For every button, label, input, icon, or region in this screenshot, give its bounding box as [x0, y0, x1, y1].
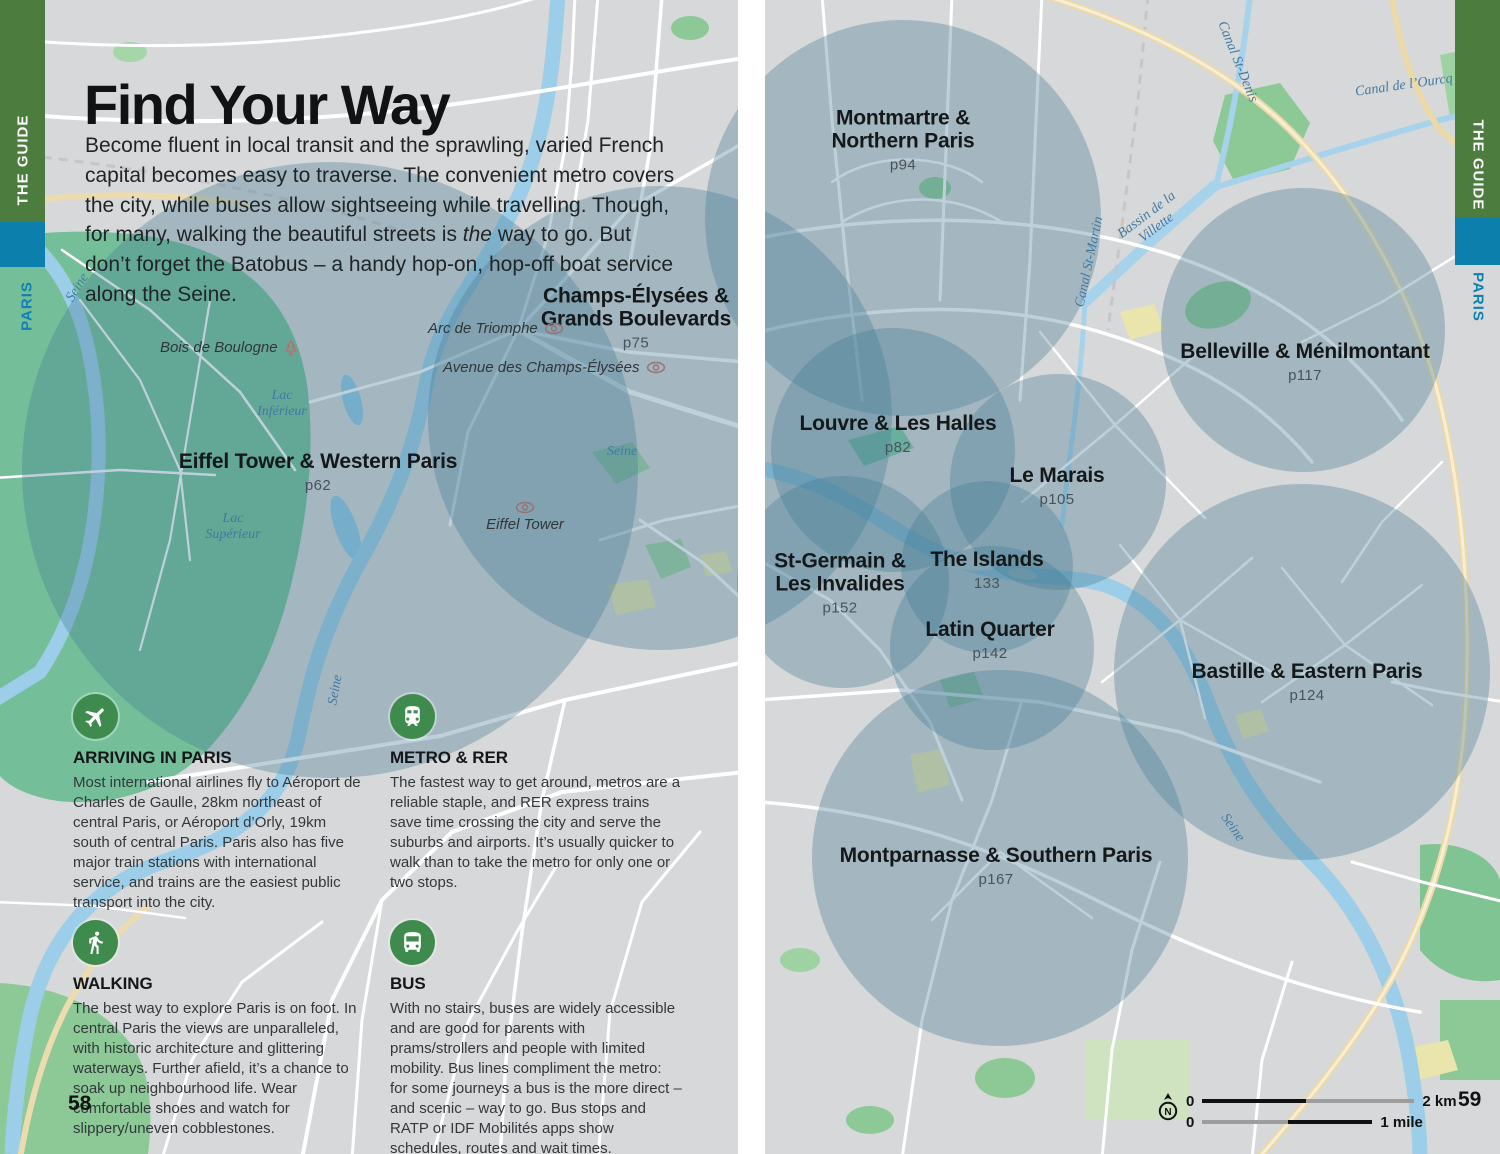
viewpoint-icon: [544, 322, 564, 335]
section-heading: BUS: [390, 974, 683, 994]
left-guide-tab-label: THE GUIDE: [15, 115, 32, 206]
page-title: Find Your Way: [84, 72, 449, 137]
poi-label-arc: Arc de Triomphe: [428, 320, 564, 337]
neighborhood-page-ref: p124: [1157, 687, 1457, 704]
compass-icon: N: [1155, 1090, 1181, 1127]
scale-km-row: 0 2 km: [1186, 1094, 1457, 1108]
water-label-seine: Seine: [607, 444, 637, 460]
neighborhood-page-ref: p105: [977, 491, 1137, 508]
tree-icon: [284, 340, 298, 356]
section-heading: ARRIVING IN PARIS: [73, 748, 366, 768]
right-guide-tab-label: THE GUIDE: [1470, 120, 1487, 211]
neighborhood-label: Champs-Élysées & Grands Boulevards p75: [529, 284, 744, 351]
section-body: With no stairs, buses are widely accessi…: [390, 999, 683, 1154]
water-label-lac-inferieur: Lac Inférieur: [246, 388, 318, 420]
neighborhood-label: St-Germain & Les Invalides p152: [768, 549, 913, 616]
neighborhood-page-ref: p75: [529, 335, 744, 352]
neighborhood-page-ref: p94: [821, 157, 986, 174]
page-gutter: [738, 0, 765, 1154]
neighborhood-label: Belleville & Ménilmontant p117: [1155, 340, 1455, 384]
right-city-tab-label: PARIS: [1470, 272, 1487, 322]
neighborhood-page-ref: p142: [890, 645, 1090, 662]
scale-mile-row: 0 1 mile: [1186, 1115, 1457, 1129]
scale-bar: 0 2 km 0 1 mile: [1186, 1094, 1457, 1129]
viewpoint-icon: [515, 501, 535, 514]
page-number-right: 59: [1458, 1088, 1481, 1112]
neighborhood-page-ref: p167: [831, 871, 1161, 888]
neighborhood-page-ref: p152: [768, 600, 913, 617]
section-bus: BUS With no stairs, buses are widely acc…: [390, 920, 683, 1154]
neighborhood-label: Montparnasse & Southern Paris p167: [831, 844, 1161, 888]
poi-label-eiffel: Eiffel Tower: [470, 501, 580, 533]
viewpoint-icon: [646, 361, 666, 374]
section-body: The best way to explore Paris is on foot…: [73, 999, 366, 1139]
water-label-lac-superieur: Lac Supérieur: [194, 511, 272, 543]
intro-italic: the: [463, 223, 492, 246]
neighborhood-page-ref: p117: [1155, 367, 1455, 384]
neighborhood-label: The Islands 133: [912, 548, 1062, 592]
svg-text:N: N: [1164, 1107, 1171, 1118]
neighborhood-label: Le Marais p105: [977, 464, 1137, 508]
neighborhood-label: Latin Quarter p142: [890, 618, 1090, 662]
neighborhood-label: Eiffel Tower & Western Paris p62: [158, 450, 478, 494]
neighborhood-page-ref: 133: [912, 575, 1062, 592]
section-heading: WALKING: [73, 974, 366, 994]
neighborhood-label: Louvre & Les Halles p82: [773, 412, 1023, 456]
left-city-tab-label: PARIS: [19, 281, 36, 331]
poi-label-bois: Bois de Boulogne: [160, 339, 298, 356]
page-number-left: 58: [68, 1092, 91, 1116]
bus-icon: [390, 920, 435, 965]
neighborhood-label: Montmartre & Northern Paris p94: [821, 106, 986, 173]
plane-icon: [73, 694, 118, 739]
left-blue-tab: [0, 222, 45, 267]
section-body: Most international airlines fly to Aérop…: [73, 773, 366, 913]
section-arriving: ARRIVING IN PARIS Most international air…: [73, 694, 366, 913]
guidebook-spread: THE GUIDE PARIS THE GUIDE PARIS Find You…: [0, 0, 1500, 1154]
right-blue-tab: [1455, 218, 1500, 265]
intro-paragraph: Become fluent in local transit and the s…: [85, 131, 679, 310]
section-body: The fastest way to get around, metros ar…: [390, 773, 683, 893]
section-metro: METRO & RER The fastest way to get aroun…: [390, 694, 683, 893]
train-icon: [390, 694, 435, 739]
neighborhood-label: Bastille & Eastern Paris p124: [1157, 660, 1457, 704]
walking-icon: [73, 920, 118, 965]
section-heading: METRO & RER: [390, 748, 683, 768]
neighborhood-page-ref: p62: [158, 477, 478, 494]
neighborhood-page-ref: p82: [773, 439, 1023, 456]
section-walking: WALKING The best way to explore Paris is…: [73, 920, 366, 1139]
poi-label-avenue: Avenue des Champs-Élysées: [443, 359, 666, 376]
